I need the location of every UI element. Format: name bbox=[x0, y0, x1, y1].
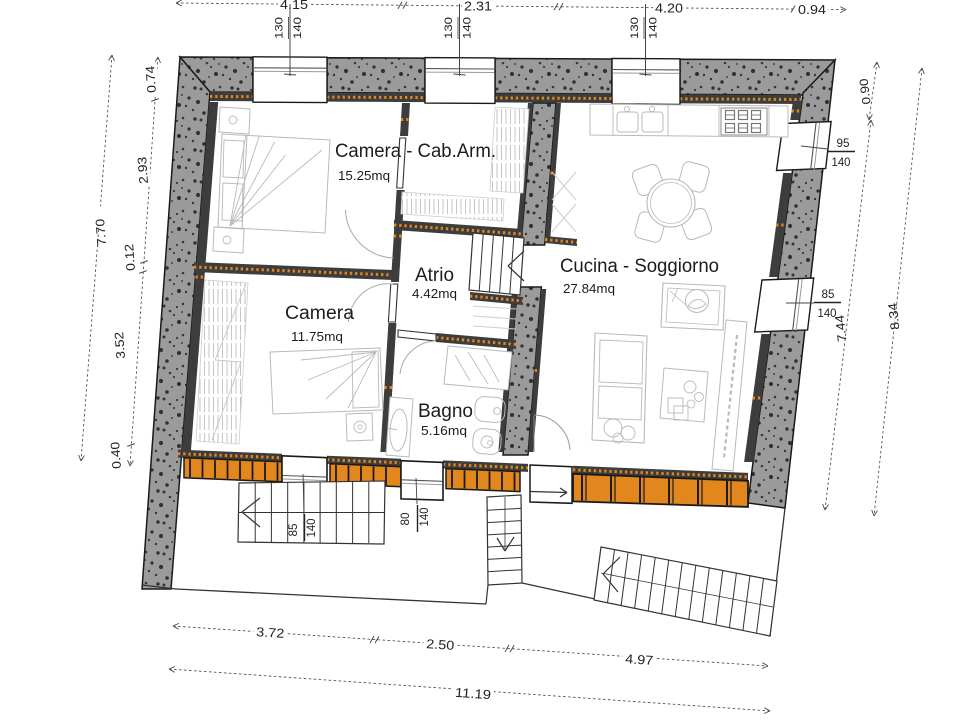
svg-text:95: 95 bbox=[837, 136, 850, 150]
svg-text:140: 140 bbox=[306, 519, 318, 538]
svg-text:Atrio: Atrio bbox=[415, 265, 454, 286]
svg-text:Camera: Camera bbox=[285, 303, 354, 324]
svg-text:3.72: 3.72 bbox=[256, 624, 285, 641]
svg-text:0.12: 0.12 bbox=[122, 243, 138, 271]
svg-text:130: 130 bbox=[629, 17, 641, 39]
svg-text:4.15: 4.15 bbox=[280, 0, 308, 12]
svg-text:140: 140 bbox=[832, 155, 851, 169]
svg-text:3.52: 3.52 bbox=[112, 331, 128, 359]
svg-text:140: 140 bbox=[292, 17, 304, 39]
svg-text:2.93: 2.93 bbox=[135, 156, 151, 184]
svg-text:85: 85 bbox=[822, 287, 835, 301]
svg-text:4.20: 4.20 bbox=[655, 1, 683, 16]
svg-text:Camera - Cab.Arm.: Camera - Cab.Arm. bbox=[335, 141, 496, 162]
svg-text:80: 80 bbox=[400, 513, 412, 526]
svg-text:0.74: 0.74 bbox=[143, 65, 159, 93]
svg-text:2.31: 2.31 bbox=[464, 0, 492, 14]
svg-text:0.40: 0.40 bbox=[108, 441, 124, 469]
svg-text:Bagno: Bagno bbox=[418, 401, 473, 422]
svg-text:11.19: 11.19 bbox=[455, 685, 492, 702]
svg-text:8.34: 8.34 bbox=[886, 302, 903, 330]
svg-text:140: 140 bbox=[419, 508, 431, 527]
svg-text:85: 85 bbox=[288, 524, 300, 537]
svg-text:5.16mq: 5.16mq bbox=[421, 423, 467, 438]
svg-text:140: 140 bbox=[818, 306, 837, 320]
svg-text:4.42mq: 4.42mq bbox=[412, 286, 457, 301]
svg-text:0.94: 0.94 bbox=[798, 2, 826, 17]
svg-text:140: 140 bbox=[648, 17, 660, 39]
svg-text:4.97: 4.97 bbox=[625, 651, 654, 668]
svg-text:27.84mq: 27.84mq bbox=[563, 281, 615, 296]
svg-text:130: 130 bbox=[274, 17, 286, 39]
svg-text:Cucina - Soggiorno: Cucina - Soggiorno bbox=[560, 256, 719, 277]
svg-text:130: 130 bbox=[443, 17, 455, 39]
svg-text:15.25mq: 15.25mq bbox=[338, 168, 390, 183]
svg-text:2.50: 2.50 bbox=[426, 636, 455, 653]
svg-text:11.75mq: 11.75mq bbox=[291, 329, 343, 344]
svg-text:7.70: 7.70 bbox=[93, 218, 109, 246]
svg-text:140: 140 bbox=[462, 17, 474, 39]
